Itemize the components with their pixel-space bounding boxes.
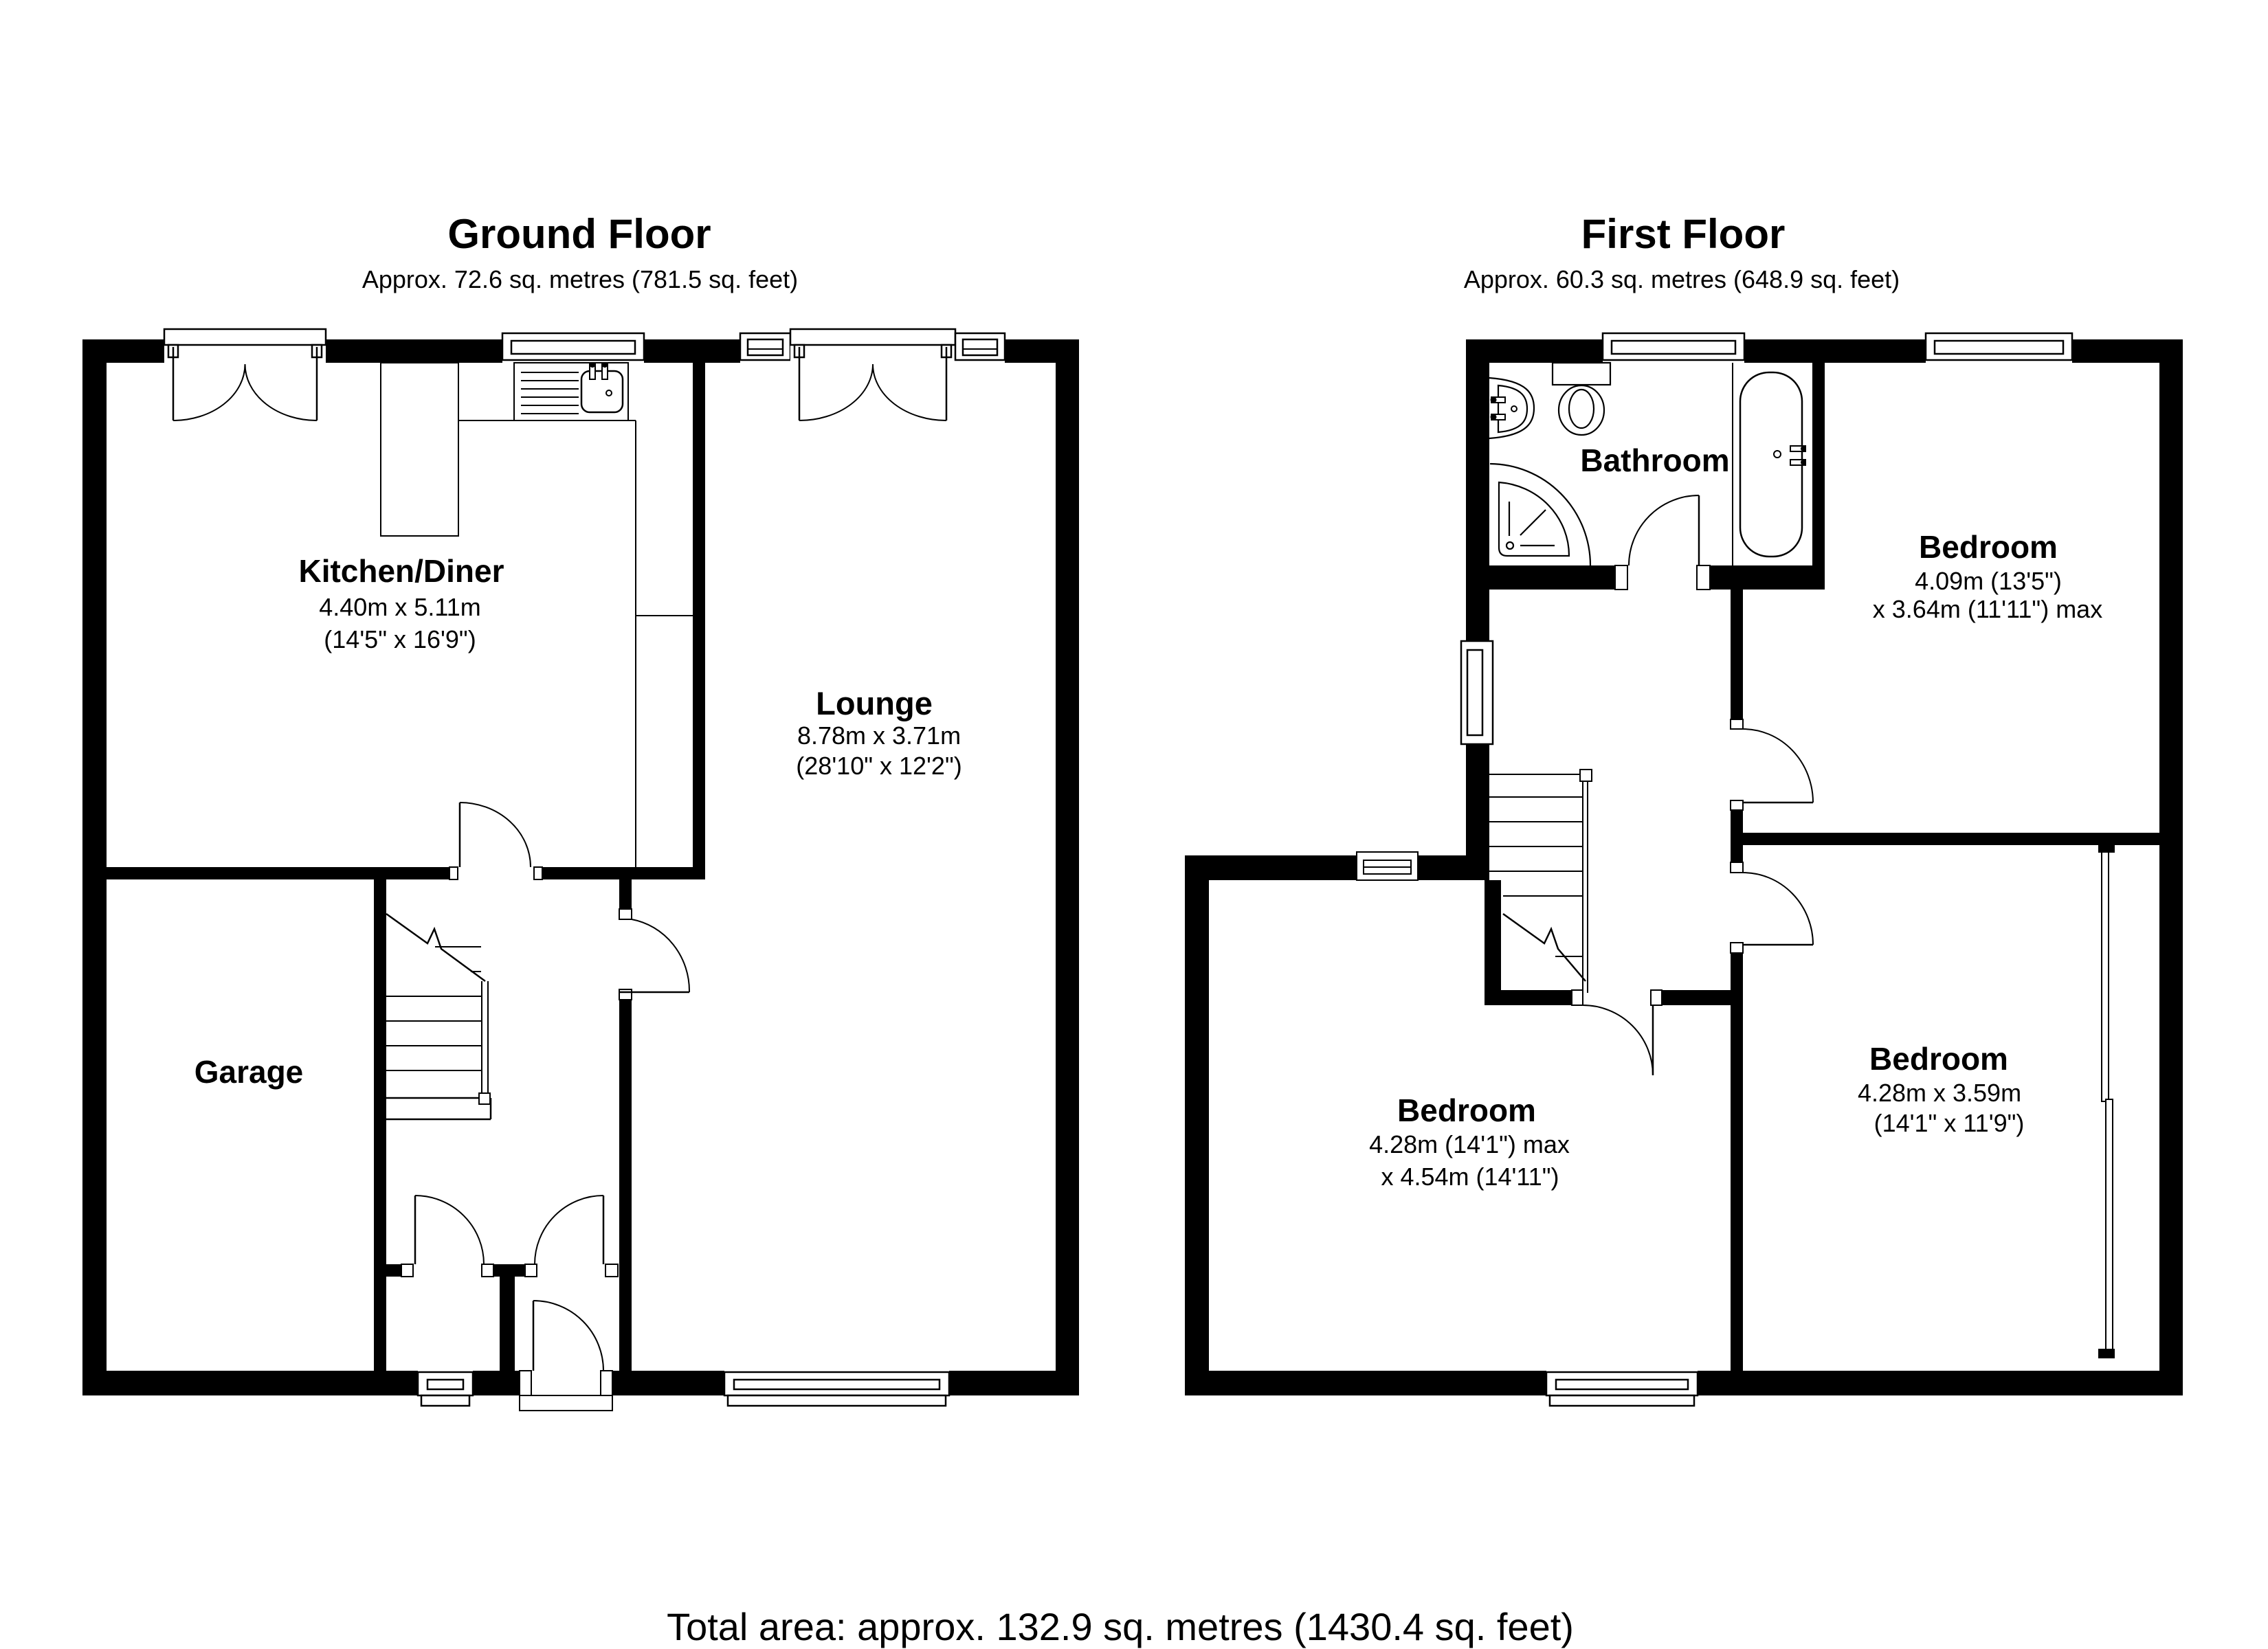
svg-text:(14'5" x 16'9"): (14'5" x 16'9") [324,625,476,653]
svg-text:Bedroom: Bedroom [1919,529,2058,565]
svg-text:Bathroom: Bathroom [1580,442,1729,478]
svg-text:Approx. 60.3 sq. metres (648.9: Approx. 60.3 sq. metres (648.9 sq. feet) [1464,265,1900,293]
svg-text:4.09m (13'5"): 4.09m (13'5") [1915,567,2062,595]
svg-text:Ground Floor: Ground Floor [447,211,711,257]
svg-text:Bedroom: Bedroom [1397,1092,1536,1128]
svg-text:Total area: approx. 132.9 sq.: Total area: approx. 132.9 sq. metres (14… [667,1605,1574,1648]
svg-text:Lounge: Lounge [816,685,933,721]
svg-text:Garage: Garage [194,1054,304,1090]
svg-text:8.78m x 3.71m: 8.78m x 3.71m [797,721,961,750]
svg-text:x 4.54m (14'11"): x 4.54m (14'11") [1381,1163,1559,1191]
svg-text:Approx. 72.6 sq. metres (781.5: Approx. 72.6 sq. metres (781.5 sq. feet) [362,265,798,293]
svg-text:4.28m x 3.59m: 4.28m x 3.59m [1858,1079,2021,1107]
svg-text:4.28m (14'1") max: 4.28m (14'1") max [1369,1130,1570,1158]
svg-text:4.40m x 5.11m: 4.40m x 5.11m [319,593,480,621]
svg-text:(14'1" x 11'9"): (14'1" x 11'9") [1874,1109,2025,1137]
svg-text:First Floor: First Floor [1581,211,1786,257]
svg-text:Kitchen/Diner: Kitchen/Diner [298,553,504,589]
svg-text:(28'10" x 12'2"): (28'10" x 12'2") [796,752,961,780]
svg-text:x 3.64m (11'11") max: x 3.64m (11'11") max [1873,595,2102,623]
svg-text:Bedroom: Bedroom [1869,1041,2008,1077]
